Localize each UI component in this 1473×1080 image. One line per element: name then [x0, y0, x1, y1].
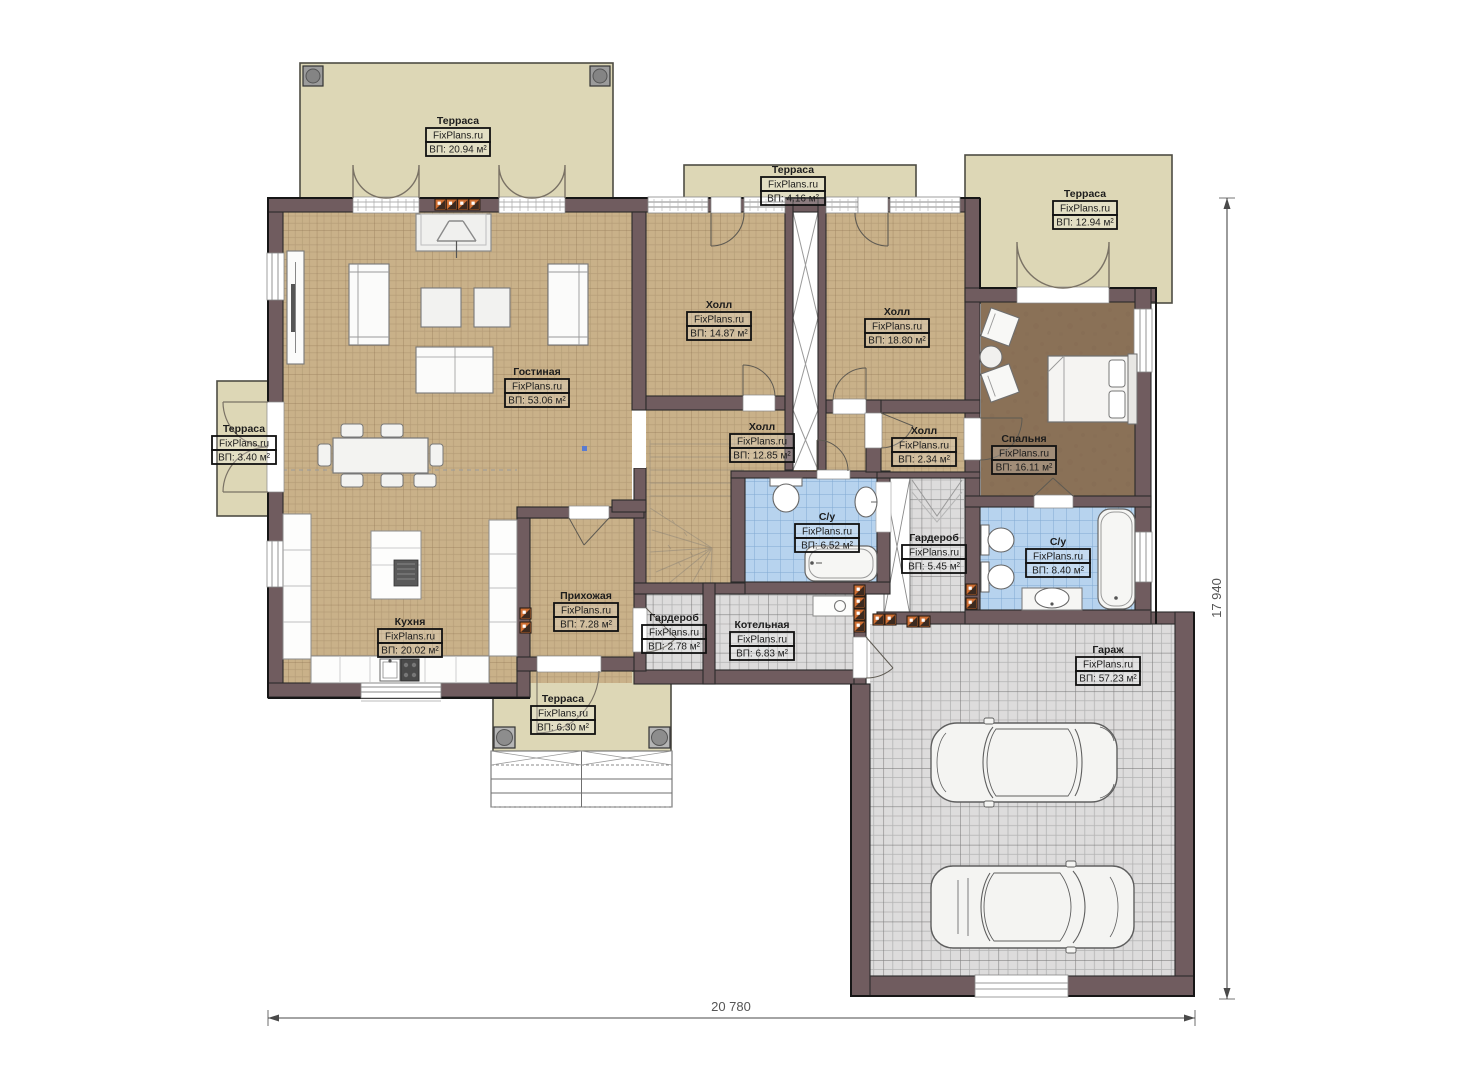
svg-text:FixPlans.ru: FixPlans.ru: [649, 628, 699, 639]
svg-text:FixPlans.ru: FixPlans.ru: [433, 131, 483, 142]
svg-text:Прихожая: Прихожая: [560, 590, 612, 602]
svg-text:FixPlans.ru: FixPlans.ru: [802, 527, 852, 538]
svg-text:FixPlans.ru: FixPlans.ru: [538, 709, 588, 720]
svg-text:FixPlans.ru: FixPlans.ru: [737, 635, 787, 646]
svg-text:Холл: Холл: [706, 299, 732, 311]
svg-text:FixPlans.ru: FixPlans.ru: [694, 315, 744, 326]
svg-text:Гардероб: Гардероб: [909, 532, 959, 544]
svg-text:ВП: 2.78 м²: ВП: 2.78 м²: [648, 642, 701, 653]
svg-text:Терраса: Терраса: [542, 693, 584, 705]
svg-text:ВП: 12.85 м²: ВП: 12.85 м²: [733, 451, 791, 462]
svg-text:Спальня: Спальня: [1001, 433, 1046, 445]
svg-text:Котельная: Котельная: [735, 619, 790, 631]
svg-text:ВП: 6.30 м²: ВП: 6.30 м²: [537, 723, 590, 734]
svg-text:ВП: 5.45 м²: ВП: 5.45 м²: [908, 562, 961, 573]
svg-text:ВП: 20.02 м²: ВП: 20.02 м²: [381, 646, 439, 657]
svg-text:Холл: Холл: [911, 425, 937, 437]
svg-text:FixPlans.ru: FixPlans.ru: [512, 382, 562, 393]
svg-text:ВП: 8.40 м²: ВП: 8.40 м²: [1032, 566, 1085, 577]
svg-text:ВП: 4.16 м²: ВП: 4.16 м²: [767, 194, 820, 205]
svg-text:ВП: 20.94 м²: ВП: 20.94 м²: [429, 145, 487, 156]
svg-text:FixPlans.ru: FixPlans.ru: [561, 606, 611, 617]
svg-text:Терраса: Терраса: [772, 164, 814, 176]
svg-text:ВП: 6.52 м²: ВП: 6.52 м²: [801, 541, 854, 552]
svg-text:FixPlans.ru: FixPlans.ru: [737, 437, 787, 448]
svg-text:17 940: 17 940: [1209, 578, 1224, 618]
svg-text:Терраса: Терраса: [223, 423, 265, 435]
svg-text:FixPlans.ru: FixPlans.ru: [899, 441, 949, 452]
svg-text:FixPlans.ru: FixPlans.ru: [1083, 660, 1133, 671]
svg-text:FixPlans.ru: FixPlans.ru: [909, 548, 959, 559]
svg-text:FixPlans.ru: FixPlans.ru: [872, 322, 922, 333]
svg-text:ВП: 16.11 м²: ВП: 16.11 м²: [996, 463, 1053, 474]
svg-text:FixPlans.ru: FixPlans.ru: [219, 439, 269, 450]
svg-text:Гардероб: Гардероб: [649, 612, 699, 624]
svg-text:FixPlans.ru: FixPlans.ru: [1060, 204, 1110, 215]
svg-text:ВП: 2.34 м²: ВП: 2.34 м²: [898, 455, 951, 466]
svg-text:FixPlans.ru: FixPlans.ru: [1033, 552, 1083, 563]
svg-text:ВП: 57.23 м²: ВП: 57.23 м²: [1079, 674, 1137, 685]
svg-text:Кухня: Кухня: [395, 616, 426, 628]
svg-text:С/у: С/у: [819, 511, 836, 523]
svg-text:FixPlans.ru: FixPlans.ru: [999, 449, 1049, 460]
svg-text:ВП: 53.06 м²: ВП: 53.06 м²: [508, 396, 566, 407]
svg-text:ВП: 6.83 м²: ВП: 6.83 м²: [736, 649, 789, 660]
svg-text:FixPlans.ru: FixPlans.ru: [768, 180, 818, 191]
svg-text:ВП: 14.87 м²: ВП: 14.87 м²: [690, 329, 748, 340]
svg-text:ВП: 18.80 м²: ВП: 18.80 м²: [868, 336, 926, 347]
svg-text:С/у: С/у: [1050, 536, 1067, 548]
svg-text:Холл: Холл: [749, 421, 775, 433]
svg-text:ВП: 3.40 м²: ВП: 3.40 м²: [218, 453, 271, 464]
svg-text:Гостиная: Гостиная: [513, 366, 560, 378]
svg-text:Терраса: Терраса: [437, 115, 479, 127]
svg-text:ВП: 7.28 м²: ВП: 7.28 м²: [560, 620, 613, 631]
svg-text:20 780: 20 780: [711, 999, 751, 1014]
svg-text:Гараж: Гараж: [1092, 644, 1124, 656]
svg-text:ВП: 12.94 м²: ВП: 12.94 м²: [1056, 218, 1114, 229]
svg-text:FixPlans.ru: FixPlans.ru: [385, 632, 435, 643]
svg-text:Терраса: Терраса: [1064, 188, 1106, 200]
svg-text:Холл: Холл: [884, 306, 910, 318]
